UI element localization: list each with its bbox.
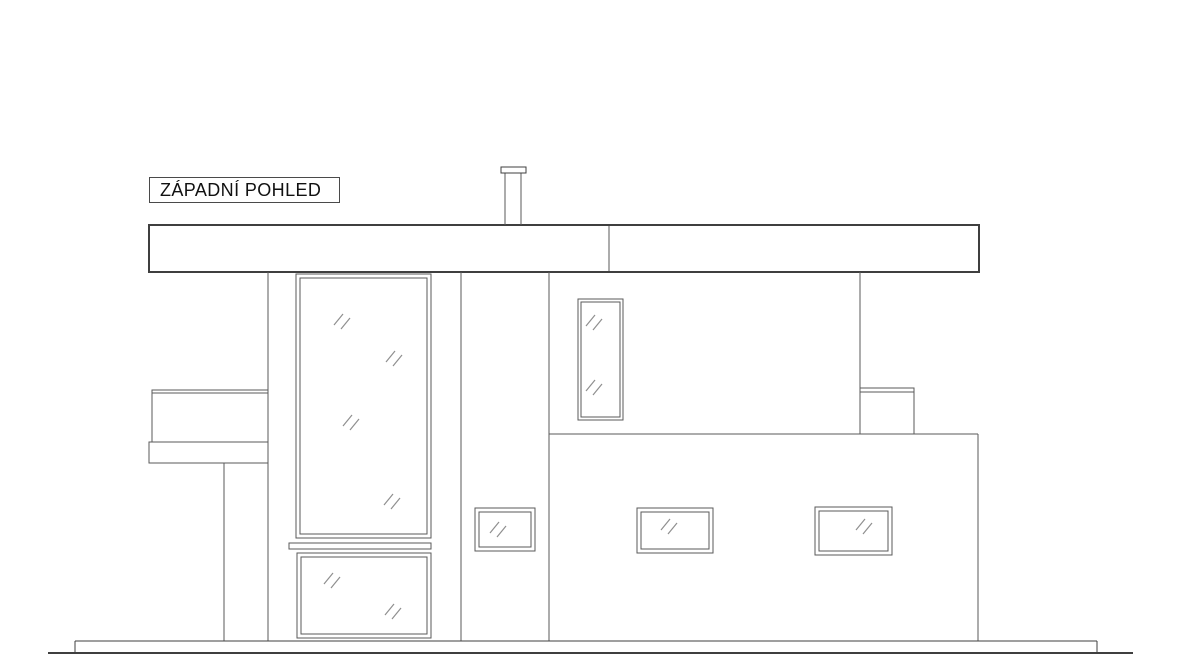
chimney-cap	[501, 167, 526, 173]
window-column-small-frame	[475, 508, 535, 551]
left-balcony-parapet	[152, 390, 268, 442]
drawing-title-box: ZÁPADNÍ POHLED	[149, 177, 340, 203]
window-large-lower-frame	[297, 553, 431, 638]
window-lower-middle-frame	[637, 508, 713, 553]
window-narrow-upper-frame	[578, 299, 623, 420]
roof-slab	[149, 225, 979, 272]
window-large-upper-frame	[296, 274, 431, 538]
left-balcony-slab	[149, 442, 268, 463]
drawing-title-label: ZÁPADNÍ POHLED	[160, 181, 321, 199]
right-balcony-parapet	[860, 388, 914, 434]
west-elevation-drawing: ZÁPADNÍ POHLED	[0, 0, 1180, 664]
elevation-svg	[0, 0, 1180, 664]
window-sill-band	[289, 543, 431, 549]
window-lower-right-frame	[815, 507, 892, 555]
